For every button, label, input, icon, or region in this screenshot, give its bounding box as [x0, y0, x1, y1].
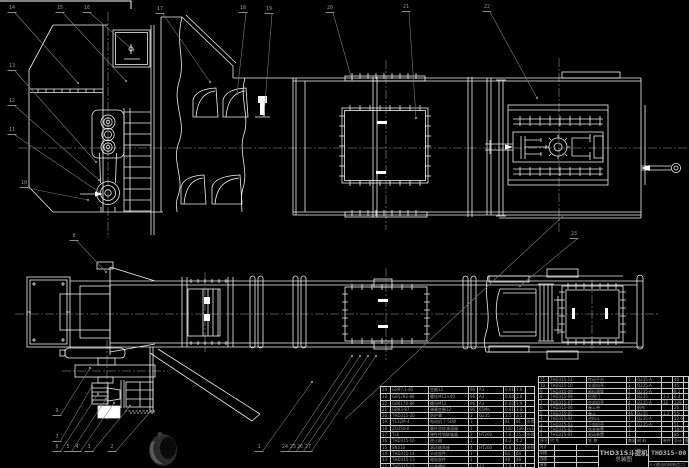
plan-bolted-inner	[188, 289, 220, 336]
bolt-tick-marks	[38, 73, 626, 345]
bom-cell: 10	[539, 383, 549, 387]
balloon-label: 15	[56, 6, 65, 13]
bom-cell	[662, 422, 673, 426]
bom-cell: 64	[515, 451, 526, 456]
plan-door-handle	[378, 325, 388, 328]
bom-cell	[662, 377, 673, 382]
leader-dot	[95, 161, 97, 163]
bom-header-cell: 序号	[539, 438, 549, 444]
balloon-label: 16	[83, 6, 92, 13]
signature-cell: 审核	[539, 463, 555, 468]
bom-cell: 15	[381, 445, 391, 450]
bom-cell: 头轮部件	[429, 451, 469, 456]
leader-line	[490, 12, 537, 98]
bom-cell: 2	[469, 432, 478, 437]
leader-line	[262, 382, 312, 452]
leader-line	[288, 356, 352, 452]
bom-cell: 4	[539, 416, 549, 420]
bom-cell: 9	[539, 389, 549, 393]
view-title: 总装图	[615, 457, 632, 464]
bom-cell: 1	[469, 419, 478, 424]
bom-row: 3THD315-03下部机壳1Q235-A51	[539, 421, 688, 426]
bom-cell: 20	[381, 413, 391, 418]
bom-cell: 1.0	[515, 387, 526, 393]
balloon-label: 6	[53, 445, 62, 452]
bom-cell: i=16.3	[526, 426, 534, 431]
plan-casing	[70, 267, 643, 355]
bom-cell: 张紧装置	[587, 427, 627, 431]
drive-sprockets	[80, 115, 120, 212]
bom-cell: Q235-A	[636, 383, 662, 387]
bom-cell: A3	[478, 387, 504, 393]
bom-cell: 12	[381, 464, 391, 468]
bom-cell: Q235-A	[636, 422, 662, 426]
bom-cell: 7	[539, 400, 549, 404]
bom-cell: 畚斗	[587, 411, 627, 415]
bom-cell: 46	[627, 411, 636, 415]
plan-head-box-inner	[30, 280, 67, 344]
watermark-blob	[149, 432, 177, 466]
bom-cell	[478, 451, 504, 456]
leader-dot	[105, 271, 107, 273]
tail-box	[508, 105, 608, 185]
bom-cell: 弹簧垫圈12	[429, 407, 469, 412]
bom-cell	[662, 416, 673, 420]
bom-cell: 15.2	[515, 432, 526, 437]
leader-dot	[132, 49, 134, 51]
bom-cell: 1	[627, 422, 636, 426]
bom-row: 24GB97.1-85垫圈1296A30.011.0	[381, 387, 534, 393]
bom-table-left: 24GB97.1-85垫圈1296A30.011.023GB5782-86螺栓M…	[380, 386, 535, 468]
bom-cell	[662, 432, 673, 436]
bom-cell: 1	[627, 427, 636, 431]
bom-cell	[684, 432, 688, 436]
leader-dot	[89, 367, 91, 369]
title-block: 设计制图描图审核 THD315斗提机 总装图 THD315-00 ××粮油机械制…	[539, 444, 688, 468]
bom-cell: 8	[539, 394, 549, 398]
bom-cell	[684, 383, 688, 387]
bom-cell	[684, 422, 688, 426]
leader-dot	[236, 93, 238, 95]
bom-header-cell: 总计	[673, 438, 684, 444]
balloon-label: 13	[8, 64, 17, 71]
bom-cell: THD315-08	[549, 394, 587, 398]
product-title: THD315斗提机	[599, 449, 647, 457]
hood-discharge	[182, 15, 293, 78]
bom-cell: 86	[673, 432, 684, 436]
bom-cell: 81	[515, 419, 526, 424]
balloon-label: 10	[20, 181, 29, 188]
leader-line	[520, 239, 577, 286]
bom-cell: 17	[381, 432, 391, 437]
bom-cell: Y132M-4	[391, 419, 429, 424]
bom-cell: 5	[539, 411, 549, 415]
leader-dot	[375, 355, 377, 357]
bom-cell: B=250	[684, 405, 688, 409]
bom-cell: 驱动装置	[587, 432, 627, 436]
leader-dot	[101, 193, 103, 195]
bom-cell: 4.2	[504, 438, 515, 443]
balloon-label: 2	[108, 445, 117, 452]
bom-cell: THD315-12	[391, 464, 429, 468]
bom-cell: 3.6	[515, 464, 526, 468]
balloon-label: 22	[483, 5, 492, 12]
plan-door-tab-bottom	[374, 341, 392, 349]
bom-cell: THD315-03	[549, 422, 587, 426]
bom-row: 19Y132M-4电动机 7.5kW18181外购	[381, 418, 534, 424]
bom-cell	[526, 401, 534, 406]
bom-cell: 3.2	[662, 394, 673, 398]
bom-cell	[662, 427, 673, 431]
bom-header-cell: 备注	[684, 438, 688, 444]
leader-line	[296, 356, 360, 452]
screw-end	[671, 163, 680, 172]
screw-end-inner	[674, 166, 678, 170]
balloon-label: 4	[73, 445, 82, 452]
bom-cell	[526, 413, 534, 418]
bom-cell: 弹性柱销联轴器	[429, 432, 469, 437]
bom-cell: 96	[469, 394, 478, 399]
leader-line	[409, 12, 416, 118]
bom-cell: 防护罩	[429, 413, 469, 418]
bom-cell	[684, 389, 688, 393]
arrowhead	[505, 145, 513, 150]
bom-cell: 1.9	[515, 401, 526, 406]
bom-cell: 32	[662, 400, 673, 404]
signature-row: 审核	[539, 462, 598, 468]
bom-cell: 8.2	[673, 389, 684, 393]
bom-cell: 24	[381, 387, 391, 393]
bom-cell: 7.6	[504, 432, 515, 437]
leader-dot	[367, 355, 369, 357]
bom-cell: 3.5	[504, 413, 515, 418]
bom-cell: 0.02	[504, 401, 515, 406]
bom-cell: Q235-A	[636, 377, 662, 382]
leader-dot	[415, 117, 417, 119]
ladder	[124, 108, 151, 212]
signature-grid: 设计制图描图审核	[539, 445, 599, 468]
bom-cell: 96	[469, 387, 478, 393]
bom-cell: Q235	[636, 394, 662, 398]
bom-cell: 81	[504, 419, 515, 424]
bom-cell: 电动机 7.5kW	[429, 419, 469, 424]
leader-dot	[113, 402, 115, 404]
balloon-label: 11	[8, 128, 17, 135]
balloon-label: 7	[53, 435, 62, 442]
tick-marks-path	[38, 73, 626, 345]
balloon-label: 27	[304, 445, 313, 452]
bom-cell: 4.2	[515, 438, 526, 443]
balloon-label: 3	[85, 445, 94, 452]
leader-line	[15, 106, 99, 180]
bom-cell: THD315-13	[391, 457, 429, 462]
bom-row: 23GB5782-86螺栓M12×4096A30.043.8	[381, 393, 534, 399]
leader-line	[163, 14, 210, 82]
bom-cell: 0.04	[504, 394, 515, 399]
bom-cell: 6.8	[504, 445, 515, 450]
signature-cell	[555, 463, 577, 468]
bom-row: 5THD315-05畚斗46Q2351.255	[539, 410, 688, 415]
takeup-wheel	[546, 135, 570, 159]
bom-cell: 1	[469, 413, 478, 418]
bom-cell	[684, 411, 688, 415]
bom-cell: 1	[627, 383, 636, 387]
bom-cell: 外购	[526, 432, 534, 437]
balloon-label: 19	[265, 7, 274, 14]
bom-cell: 螺栓M12×40	[429, 394, 469, 399]
drawing-number-cell: THD315-00 ××粮油机械制造二厂	[649, 445, 688, 468]
balloon-label: 23	[570, 232, 579, 239]
bom-cell: 1.2	[662, 411, 673, 415]
plan-door-handle	[378, 299, 388, 302]
bom-cell	[526, 457, 534, 462]
takeup-block	[594, 136, 603, 158]
bom-cell: THD315-04	[549, 416, 587, 420]
leader-dot	[97, 393, 99, 395]
bom-cell: 27.2	[515, 445, 526, 450]
bom-cell: 14	[381, 451, 391, 456]
bom-cell: 帆布	[636, 405, 662, 409]
bom-row: 14THD315-14头轮部件16464	[381, 450, 534, 456]
bom-cell: 1.0	[515, 407, 526, 412]
leader-line	[333, 13, 352, 80]
bom-header-cell: 代 号	[549, 438, 587, 444]
bom-cell: 2	[539, 427, 549, 431]
bom-cell: 1	[627, 416, 636, 420]
bom-cell: HT200	[478, 445, 504, 450]
bom-row: 15SN310滚动轴承座4HT2006.827.2外购	[381, 444, 534, 450]
bom-cell: ZQ250-Ⅱ	[391, 426, 429, 431]
bom-row: 11THD315-11传动平台1Q235-A46	[539, 377, 688, 382]
bom-cell: THD315-16	[391, 438, 429, 443]
bom-cell	[478, 457, 504, 462]
bom-cell: GB5782-86	[391, 394, 429, 399]
balloon-label: 8	[70, 234, 79, 241]
bom-cell: 130	[515, 426, 526, 431]
plan-bolted-section	[182, 277, 233, 347]
leader-dot	[359, 355, 361, 357]
bom-cell: 畚斗带	[587, 405, 627, 409]
bom-cell: 3.8	[515, 394, 526, 399]
cad-drawing-canvas: 24GB97.1-85垫圈1296A30.011.023GB5782-86螺栓M…	[0, 0, 689, 468]
bom-cell: 45	[673, 383, 684, 387]
bom-header-cell: 单件	[662, 438, 673, 444]
leader-dot	[91, 385, 93, 387]
bom-cell: 96	[469, 401, 478, 406]
torn-edge-right	[241, 78, 246, 212]
leader-dot	[150, 410, 152, 412]
bom-cell: 128	[673, 400, 684, 404]
bom-cell	[636, 427, 662, 431]
bom-cell: 22	[381, 401, 391, 406]
bom-cell: THD315-09	[549, 389, 587, 393]
bom-cell	[478, 426, 504, 431]
leader-dot	[536, 97, 538, 99]
bom-cell: 1	[627, 389, 636, 393]
bom-cell: 1	[469, 438, 478, 443]
bom-cell: 传动平台	[587, 377, 627, 382]
bom-cell: 6	[539, 405, 549, 409]
bom-cell: Q235	[636, 411, 662, 415]
bom-cell: THD315-14	[391, 451, 429, 456]
bom-cell: 1	[627, 405, 636, 409]
bom-cell: 逆止器	[429, 438, 469, 443]
balloon-label: 18	[239, 6, 248, 13]
bom-cell: TL6	[391, 432, 429, 437]
leader-dot	[263, 115, 265, 117]
bom-cell: Q235	[478, 413, 504, 418]
bom-cell: A3	[478, 394, 504, 399]
bom-cell: 18.5	[673, 427, 684, 431]
bom-cell: GB97.1-85	[391, 387, 429, 393]
bom-cell: 拉紧螺杆	[429, 464, 469, 468]
bom-cell	[526, 394, 534, 399]
balloon-label: 21	[402, 5, 411, 12]
bom-cell: Q235-A	[636, 416, 662, 420]
leader-dot	[125, 80, 127, 82]
bom-cell	[662, 389, 673, 393]
drawing-number: THD315-00	[649, 445, 688, 461]
elevation-view	[29, 15, 681, 235]
balloon-label: 14	[8, 6, 17, 13]
torn-edge-left	[176, 17, 182, 212]
bom-cell: 0.01	[504, 387, 515, 393]
bom-cell: 1	[627, 432, 636, 436]
bom-cell: THD315-20	[391, 413, 429, 418]
balloon-label: 20	[326, 6, 335, 13]
plan-drive-unit	[60, 347, 260, 421]
bom-cell: 55	[673, 411, 684, 415]
bom-cell	[478, 438, 504, 443]
bom-cell: Q235-A	[636, 400, 662, 404]
bom-cell: 1	[627, 377, 636, 382]
bom-cell: 51	[673, 422, 684, 426]
bom-cell	[526, 438, 534, 443]
bom-cell: 2	[469, 464, 478, 468]
bom-cell: 头部机壳	[587, 383, 627, 387]
bom-cell: GB93-87	[391, 407, 429, 412]
bom-table-right: 11THD315-11传动平台1Q235-A4610THD315-10头部机壳1…	[538, 376, 689, 468]
leader-line	[60, 386, 92, 442]
leader-dot	[105, 398, 107, 400]
bom-cell: 下部机壳	[587, 422, 627, 426]
bom-row: 16THD315-16逆止器14.24.2	[381, 437, 534, 443]
leader-line	[237, 13, 246, 94]
bom-cell: HT200	[478, 432, 504, 437]
bom-cell: 圆柱齿轮减速器	[429, 426, 469, 431]
bom-cell: A3	[478, 464, 504, 468]
bom-cell: THD315-02	[549, 427, 587, 431]
bom-cell: 19	[381, 419, 391, 424]
bom-row: 13THD315-13尾轮部件14848	[381, 456, 534, 462]
head-box-detail	[124, 44, 140, 59]
bom-row: 1THD315-01驱动装置186	[539, 431, 688, 436]
balloon-label: 9	[53, 409, 62, 416]
bom-cell: 4	[627, 400, 636, 404]
head-hood-outline	[29, 17, 182, 235]
leader-dot	[351, 355, 353, 357]
bom-cell: THD315-01	[549, 432, 587, 436]
leader-dot	[129, 405, 131, 407]
bom-cell: 1.8	[504, 464, 515, 468]
bom-cell: 65Mn	[478, 407, 504, 412]
bom-cell: Q235-A	[636, 389, 662, 393]
bom-cell: 1	[469, 457, 478, 462]
bom-cell	[478, 419, 504, 424]
leader-line	[77, 241, 106, 272]
plan-slot	[204, 297, 210, 304]
takeup-bracket-left	[521, 136, 546, 159]
bom-header-cell: 数量	[627, 438, 636, 444]
bom-rows: 11THD315-11传动平台1Q235-A4610THD315-10头部机壳1…	[539, 377, 688, 437]
plan-head-box	[27, 277, 70, 347]
bom-cell: 进料斗	[587, 416, 627, 420]
plan-head-marks	[27, 282, 70, 342]
bom-cell: 16	[381, 438, 391, 443]
door-handle	[377, 121, 387, 124]
bom-row: 2THD315-02张紧装置118.5	[539, 426, 688, 431]
balloon-label: 17	[156, 7, 165, 14]
leader-line	[63, 13, 126, 81]
leader-dot	[87, 199, 89, 201]
bom-cell: 尾轮部件	[429, 457, 469, 462]
leader-line	[303, 356, 368, 452]
bom-row: 8THD315-08检视门2Q2353.26.4	[539, 393, 688, 398]
bom-row: 7THD315-07中部机壳4Q235-A32128	[539, 399, 688, 404]
bom-cell	[526, 451, 534, 456]
bom-cell: SN310	[391, 445, 429, 450]
bom-cell: 12.6	[673, 416, 684, 420]
leader-line	[264, 14, 272, 116]
door-handle	[376, 171, 386, 174]
bom-cell: 96	[469, 407, 478, 412]
mid-casing	[293, 77, 645, 218]
sheet-frame-corner	[0, 1, 131, 9]
bom-cell: 1	[469, 451, 478, 456]
bom-cell: 64	[504, 451, 515, 456]
bom-row: 9THD315-09卸料溜管1Q235-A8.2	[539, 388, 688, 393]
bom-cell: 3	[539, 422, 549, 426]
bom-cell: 0.01	[504, 407, 515, 412]
bom-cell: 18	[381, 426, 391, 431]
bom-cell: 垫圈12	[429, 387, 469, 393]
bom-cell: 1	[469, 426, 478, 431]
bom-cell: THD315-05	[549, 411, 587, 415]
bom-cell: 48	[515, 457, 526, 462]
tail-rails	[508, 110, 608, 180]
bom-cell: 13	[381, 457, 391, 462]
bom-cell: 3.5	[515, 413, 526, 418]
bom-cell: 130	[504, 426, 515, 431]
bom-row: 10THD315-10头部机壳1Q235-A45	[539, 382, 688, 387]
balloon-label: 5	[64, 445, 73, 452]
bom-row: 12THD315-12拉紧螺杆2A31.83.6	[381, 463, 534, 468]
bom-row: 6THD315-06畚斗带1帆布26B=250	[539, 404, 688, 409]
bom-row: 21GB93-87弹簧垫圈129665Mn0.011.0	[381, 406, 534, 412]
buckets	[181, 88, 248, 204]
bom-cell	[684, 377, 688, 382]
bom-cell: 6.4	[673, 394, 684, 398]
bom-header-cell: 材 料	[636, 438, 662, 444]
bom-cell	[662, 383, 673, 387]
leader-dot	[209, 81, 211, 83]
bom-row: 17TL6弹性柱销联轴器2HT2007.615.2外购	[381, 431, 534, 437]
bom-cell: 卸料溜管	[587, 389, 627, 393]
bom-cell: 11	[539, 377, 549, 382]
bom-cell: A3	[478, 401, 504, 406]
company-name: ××粮油机械制造二厂	[649, 461, 688, 468]
bom-cell	[636, 432, 662, 436]
